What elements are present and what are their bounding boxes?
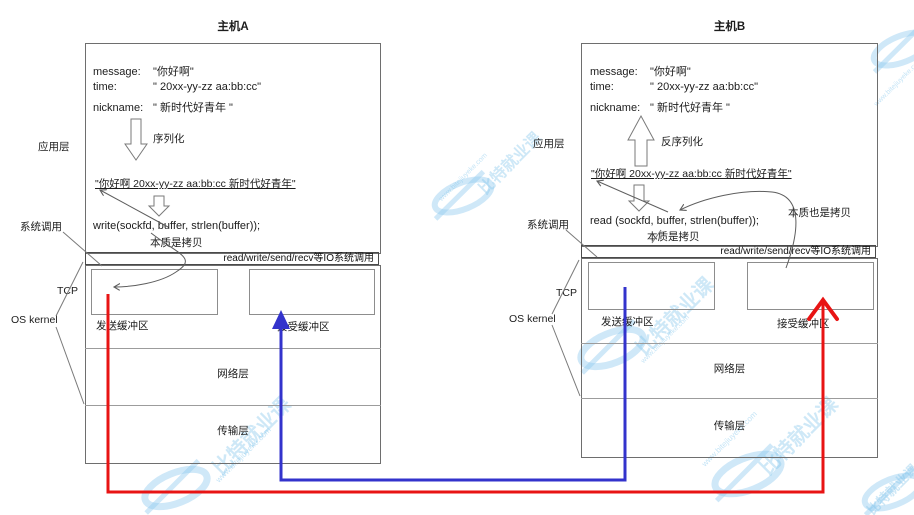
- struct-field: time:" 20xx-yy-zz aa:bb:cc": [590, 81, 758, 93]
- host-b-io-band: read/write/send/recv等IO系统调用: [581, 245, 876, 258]
- tcp-label: TCP: [57, 285, 78, 298]
- field-key: time:: [93, 81, 153, 93]
- host-b-send-buffer: [588, 262, 715, 310]
- host-a-send-buffer: [91, 269, 218, 315]
- transport-layer-label: 传输层: [581, 420, 878, 433]
- struct-field: message:"你好啊": [590, 63, 691, 79]
- field-value: " 20xx-yy-zz aa:bb:cc": [650, 81, 758, 93]
- write-syscall-code: write(sockfd, buffer, strlen(buffer));: [93, 220, 260, 233]
- copy-note: 本质是拷贝: [150, 237, 203, 250]
- host-a-title: 主机A: [85, 21, 381, 35]
- field-value: " 20xx-yy-zz aa:bb:cc": [153, 81, 261, 93]
- field-key: nickname:: [590, 102, 650, 114]
- struct-field: message:"你好啊": [93, 63, 194, 79]
- send-buffer-label: 发送缓冲区: [96, 320, 149, 333]
- layer-divider: [581, 343, 878, 344]
- app-layer-label: 应用层: [533, 138, 565, 151]
- deserialize-label: 反序列化: [661, 136, 703, 149]
- os-kernel-label: OS kernel: [11, 314, 58, 327]
- network-layer-label: 网络层: [85, 368, 381, 381]
- layer-divider: [85, 405, 381, 406]
- recv-buffer-label: 接受缓冲区: [277, 321, 330, 334]
- host-a-recv-buffer: [249, 269, 375, 315]
- syscall-label: 系统调用: [527, 219, 569, 232]
- host-b-title: 主机B: [581, 21, 878, 35]
- layer-divider: [581, 398, 878, 399]
- transport-layer-label: 传输层: [85, 425, 381, 438]
- copy-note-extra: 本质也是拷贝: [788, 207, 851, 220]
- field-value: " 新时代好青年 ": [153, 102, 233, 114]
- struct-field: time:" 20xx-yy-zz aa:bb:cc": [93, 81, 261, 93]
- field-value: "你好啊": [650, 66, 691, 78]
- serialized-string: "你好啊 20xx-yy-zz aa:bb:cc 新时代好青年": [95, 178, 296, 191]
- host-a-io-band: read/write/send/recv等IO系统调用: [85, 252, 379, 265]
- kernel-brace-line: [552, 260, 580, 396]
- kernel-brace-line: [56, 262, 84, 404]
- field-value: " 新时代好青年 ": [650, 102, 730, 114]
- serialized-string: "你好啊 20xx-yy-zz aa:bb:cc 新时代好青年": [591, 168, 792, 181]
- struct-field: nickname:" 新时代好青年 ": [93, 99, 233, 115]
- field-key: message:: [93, 66, 153, 78]
- diagram-canvas: 比特就业课 www.bitejiuyeke.com 比特就业课 www.bite…: [0, 0, 914, 515]
- tcp-label: TCP: [556, 287, 577, 300]
- watermark-brand-text: 比特就业课: [862, 459, 914, 515]
- field-key: nickname:: [93, 102, 153, 114]
- copy-note: 本质是拷贝: [647, 231, 700, 244]
- serialize-label: 序列化: [153, 133, 185, 146]
- recv-buffer-label: 接受缓冲区: [777, 318, 830, 331]
- network-layer-label: 网络层: [581, 363, 878, 376]
- os-kernel-label: OS kernel: [509, 313, 556, 326]
- read-syscall-code: read (sockfd, buffer, strlen(buffer));: [590, 215, 759, 228]
- watermark-url-text: www.bitejiuyeke.com: [873, 57, 914, 108]
- field-value: "你好啊": [153, 66, 194, 78]
- send-buffer-label: 发送缓冲区: [601, 316, 654, 329]
- app-layer-label: 应用层: [38, 141, 70, 154]
- struct-field: nickname:" 新时代好青年 ": [590, 99, 730, 115]
- field-key: time:: [590, 81, 650, 93]
- syscall-label: 系统调用: [20, 221, 62, 234]
- host-b-recv-buffer: [747, 262, 874, 310]
- field-key: message:: [590, 66, 650, 78]
- layer-divider: [85, 348, 381, 349]
